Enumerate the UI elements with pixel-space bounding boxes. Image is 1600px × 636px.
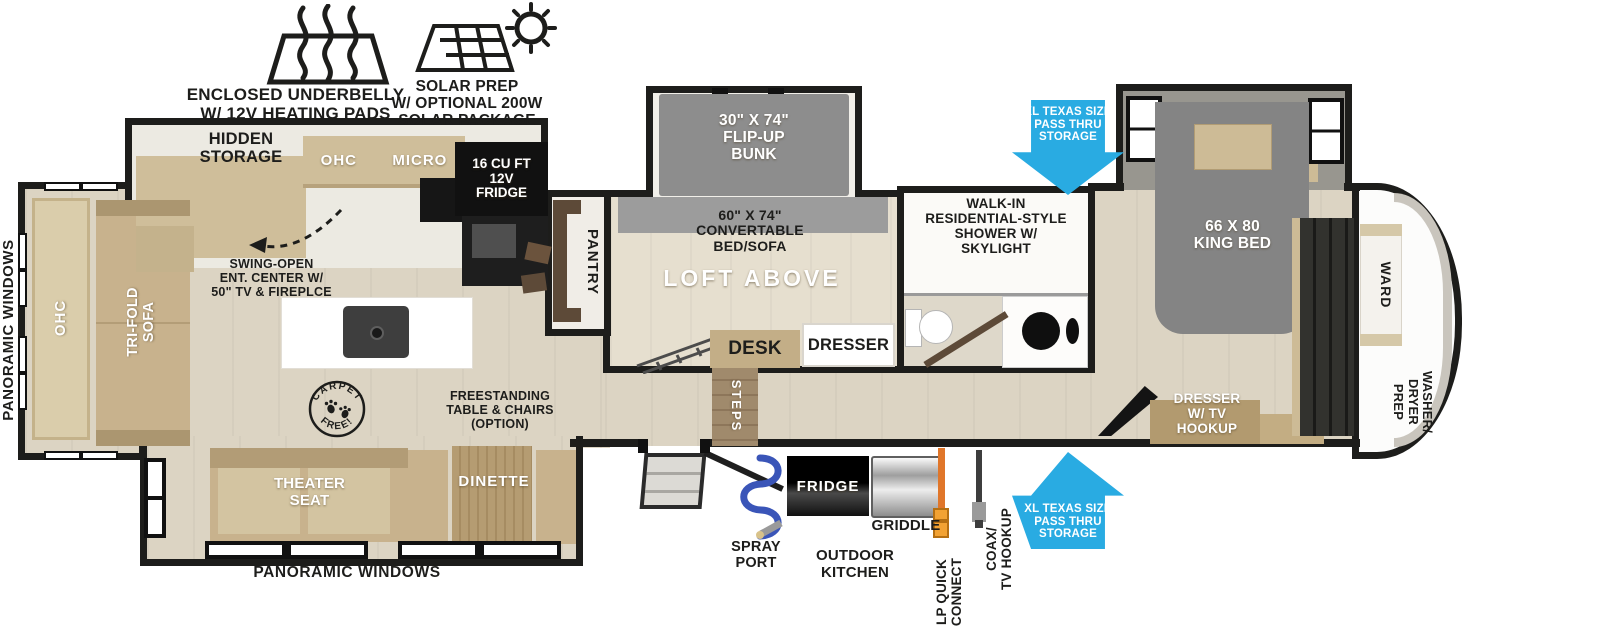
dresser-tv-label: DRESSER W/ TV HOOKUP (1152, 392, 1262, 437)
pantry-shelf-top (553, 200, 581, 214)
solar-prep-label: SOLAR PREP W/ OPTIONAL 200W SOLAR PACKAG… (362, 78, 572, 129)
heating-pads-icon (228, 4, 413, 88)
fridge-12v-label: 16 CU FT 12V FRIDGE (472, 157, 531, 202)
ward-shelf-bottom-trim (1360, 334, 1402, 346)
dinette-table (452, 446, 532, 548)
carpet-label-top: CARPET (310, 381, 364, 403)
vanity-sink-small (1066, 318, 1079, 344)
pantry-label: PANTRY (584, 212, 600, 312)
shower-label: WALK-IN RESIDENTIAL-STYLE SHOWER W/ SKYL… (906, 197, 1086, 256)
pass-thru-arrow-up: XL TEXAS SIZE PASS THRU STORAGE (1012, 452, 1124, 549)
swing-open-arrow (243, 204, 348, 258)
rear-side-window-1 (18, 233, 27, 307)
panoramic-windows-bottom-label: PANORAMIC WINDOWS (247, 564, 447, 581)
fridge-12v: 16 CU FT 12V FRIDGE (455, 142, 548, 216)
wardrobe-doors (1300, 218, 1354, 436)
coax-tip (975, 520, 983, 528)
outdoor-kitchen-label: OUTDOOR KITCHEN (798, 548, 912, 581)
steps-label: STEPS (727, 358, 743, 454)
panoramic-windows-left-label: PANORAMIC WINDOWS (1, 230, 17, 430)
bedroom-slide-window-right (1308, 98, 1344, 164)
bedroom-top-wall-left (1088, 183, 1124, 191)
rear-bottom-window (44, 451, 118, 460)
trifold-sofa-arm-top (96, 200, 190, 216)
dinette-label: DINETTE (444, 474, 544, 491)
king-bed-label: 66 X 80 KING BED (1160, 218, 1305, 252)
loft-dresser: DRESSER (802, 323, 895, 367)
pass-thru-top-label: XL TEXAS SIZE PASS THRU STORAGE (1012, 106, 1124, 144)
trifold-sofa-arm-bottom (96, 430, 190, 446)
hidden-storage-label: HIDDEN STORAGE (166, 130, 316, 166)
loft-step-2 (521, 272, 547, 293)
theater-seat-backrest (210, 448, 408, 468)
pantry-shelf (553, 200, 567, 322)
carpet-free-stamp: CARPET FREE! (306, 378, 368, 440)
dinette-end-window (144, 458, 166, 538)
rear-ohc-label: OHC (53, 268, 69, 368)
coax-tv-hookup-label: COAX/ TV HOOKUP (985, 501, 1019, 597)
outdoor-fridge-label: FRIDGE (797, 478, 860, 495)
washer-dryer-label: WASHER/ DRYER PREP (1390, 359, 1434, 445)
convertible-bed-label: 60" X 74" CONVERTABLE BED/SOFA (645, 208, 855, 254)
outdoor-fridge: FRIDGE (787, 456, 869, 516)
loft-desk: DESK (710, 330, 800, 368)
coax-cable (976, 450, 982, 506)
sink-drain (370, 326, 384, 340)
entry-door-jamb-left (638, 439, 648, 453)
flip-up-bunk-label: 30" X 74" FLIP-UP BUNK (679, 112, 829, 163)
griddle-label: GRIDDLE (854, 518, 958, 535)
rear-top-window (44, 182, 118, 191)
entry-door-jamb-right (700, 439, 710, 453)
vanity-sink (1022, 312, 1060, 350)
pantry-shelf-bottom (553, 308, 581, 322)
bottom-wall-left (570, 439, 646, 447)
desk-label: DESK (728, 339, 782, 360)
svg-text:CARPET: CARPET (310, 381, 364, 403)
freestanding-table-label: FREESTANDING TABLE & CHAIRS (OPTION) (436, 390, 564, 431)
pass-thru-arrow-down: XL TEXAS SIZE PASS THRU STORAGE (1012, 100, 1124, 195)
entry-steps (640, 453, 707, 509)
dinette-window-1 (205, 541, 368, 559)
lp-hose (938, 448, 945, 510)
toilet-bowl (919, 310, 953, 344)
lp-quick-connect-label: LP QUICK CONNECT (935, 546, 969, 636)
paw-prints-icon (325, 400, 351, 419)
micro-label: MICRO (392, 152, 447, 169)
carpet-label-bottom: FREE! (318, 415, 355, 432)
ward-label: WARD (1377, 235, 1393, 335)
svg-text:FREE!: FREE! (318, 415, 355, 432)
theater-seat-label: THEATER SEAT (252, 476, 367, 509)
coax-connector (972, 502, 986, 522)
loft-above-label: LOFT ABOVE (652, 266, 852, 291)
trifold-sofa-label: TRI-FOLD SOFA (126, 262, 160, 382)
bed-pillow (1194, 124, 1272, 170)
dinette-bench-right (536, 450, 576, 544)
dresser-label: DRESSER (808, 336, 889, 354)
pass-thru-bottom-label: XL TEXAS SIZE PASS THRU STORAGE (1012, 503, 1124, 541)
rear-side-window-2 (18, 336, 27, 410)
bunk-clip-2 (768, 88, 784, 94)
floorplan-diagram: ENCLOSED UNDERBELLY W/ 12V HEATING PADS … (0, 0, 1600, 636)
dinette-bench-left (408, 450, 448, 544)
solar-prep-icon (400, 2, 560, 80)
spray-port-hose-icon (724, 450, 794, 542)
ohc-cabinet-label: OHC (321, 152, 357, 169)
bedroom-top-wall-right (1344, 183, 1360, 191)
bunk-clip-1 (712, 88, 728, 94)
swing-open-label: SWING-OPEN ENT. CENTER W/ 50" TV & FIREP… (194, 258, 349, 299)
dinette-window-2 (398, 541, 561, 559)
spray-port-label: SPRAY PORT (716, 540, 796, 572)
range-appliance (472, 224, 516, 258)
